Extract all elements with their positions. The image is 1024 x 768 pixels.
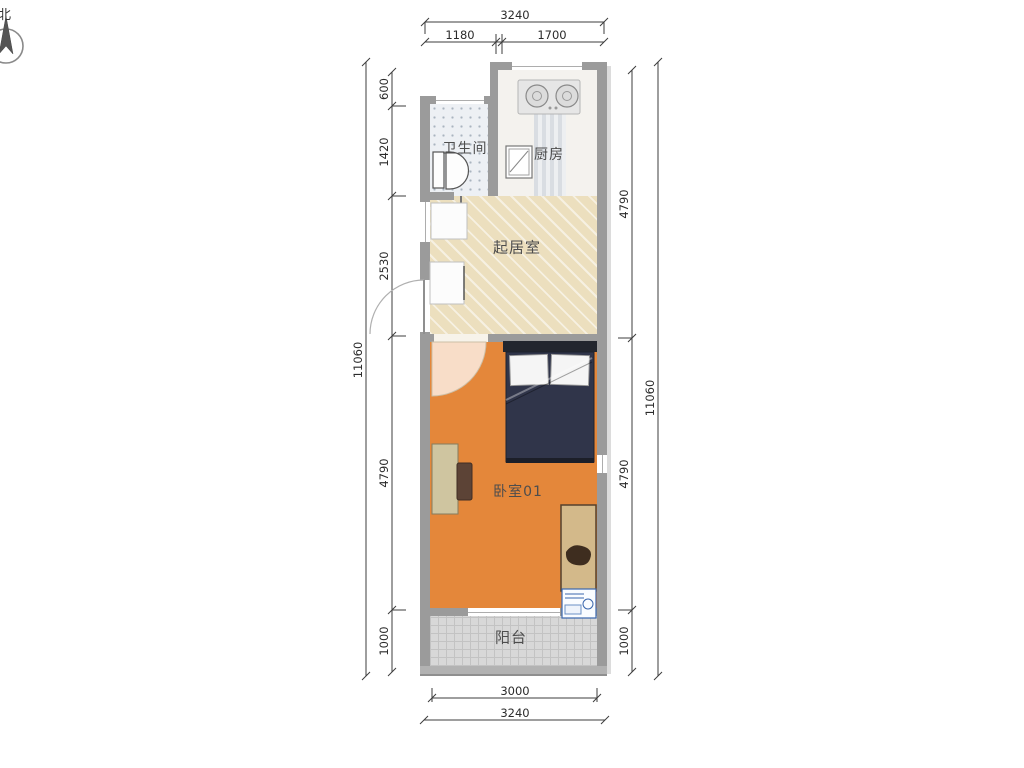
entry-door-arc: [370, 280, 424, 334]
dim-top-overall: 3240: [500, 8, 529, 22]
dim-bottom-overall: 3240: [500, 706, 529, 720]
dim-left-seg-5: 1000: [377, 626, 391, 655]
fixtures-layer: [0, 0, 1024, 768]
dim-left-seg-4: 4790: [377, 458, 391, 487]
floor-plan-canvas: 北: [0, 0, 1024, 768]
dim-left-seg-1: 600: [377, 78, 391, 100]
desk: [432, 444, 458, 514]
dim-bottom-inner: 3000: [500, 684, 529, 698]
stove-icon: [518, 80, 580, 114]
bathroom-label: 卫生间: [443, 138, 488, 158]
living-room-label: 起居室: [493, 237, 541, 258]
dim-right-seg-2: 4790: [617, 459, 631, 488]
dim-top-seg-1: 1180: [445, 28, 474, 42]
dim-left-seg-2: 1420: [377, 137, 391, 166]
chair: [457, 463, 472, 500]
dim-top-seg-2: 1700: [537, 28, 566, 42]
wardrobe: [561, 505, 596, 591]
bed: [503, 341, 597, 463]
living-cabinets: [430, 203, 467, 304]
dim-left-seg-3: 2530: [377, 251, 391, 280]
dim-right-overall: 11060: [643, 380, 657, 417]
bedroom-door-arc: [432, 342, 486, 396]
balcony-label: 阳台: [495, 627, 527, 648]
dim-right-seg-1: 4790: [617, 189, 631, 218]
dim-right-seg-3: 1000: [617, 626, 631, 655]
sink-icon: [506, 146, 532, 178]
washing-machine-icon: [562, 589, 596, 618]
kitchen-label: 厨房: [534, 144, 564, 164]
bedroom-label: 卧室01: [493, 481, 543, 501]
dim-left-overall: 11060: [351, 342, 365, 379]
